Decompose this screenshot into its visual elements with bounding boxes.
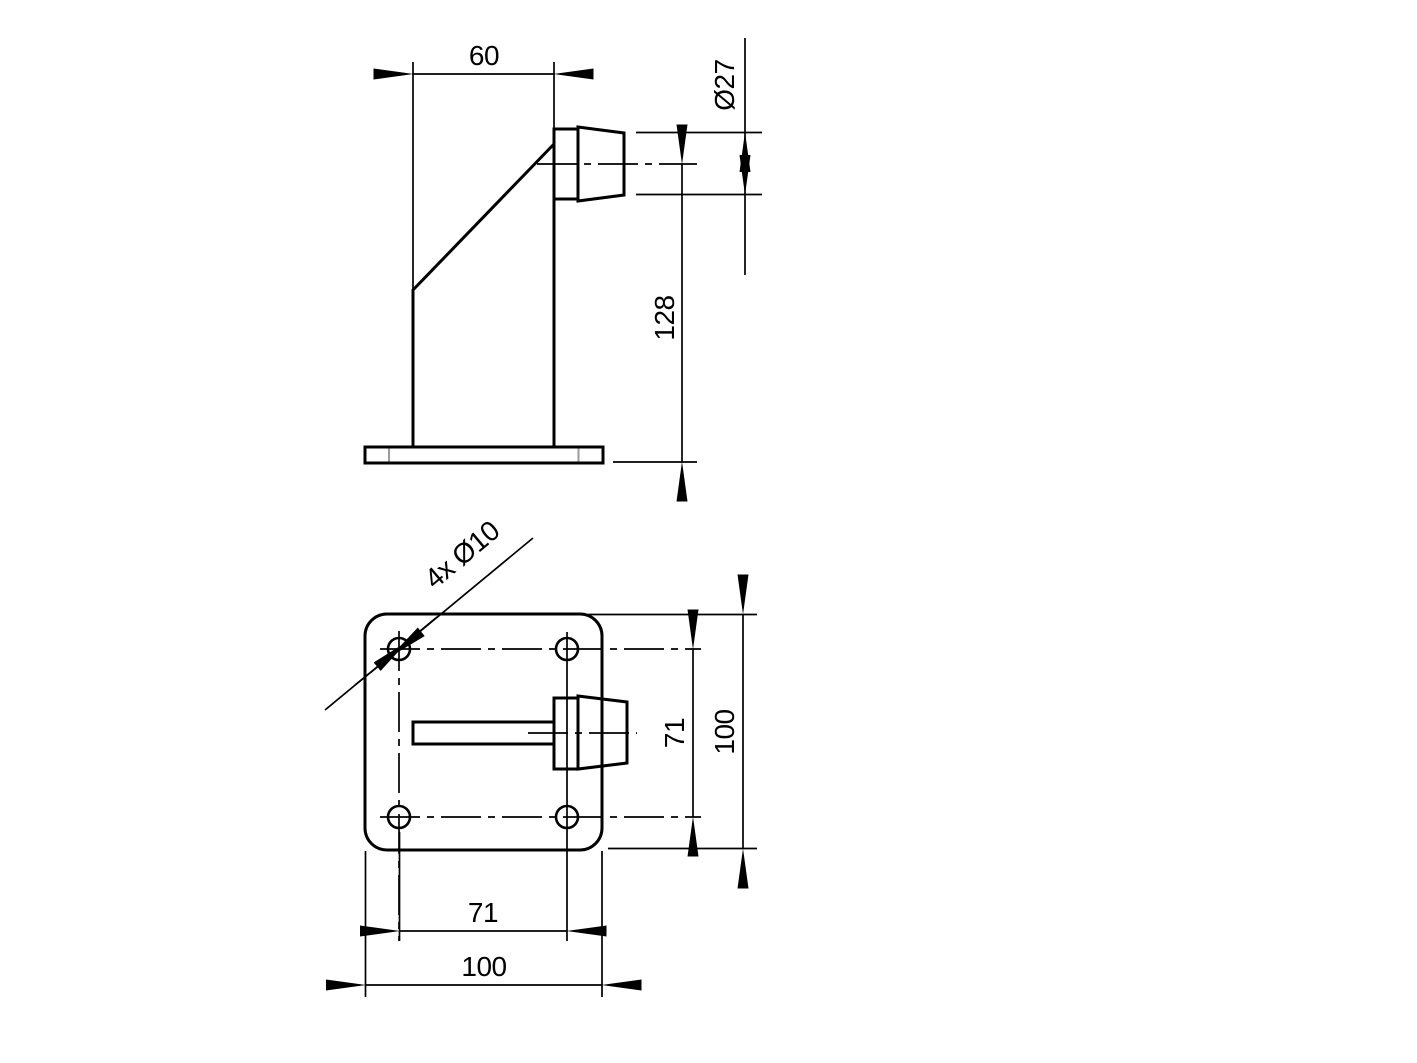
leader-4xd10-label: 4x Ø10 (418, 515, 505, 595)
dim-128-label: 128 (649, 295, 680, 340)
leader-4xd10-arrow-upper (408, 617, 438, 642)
leader-4xd10-arrow-lower (355, 657, 391, 686)
dim-100v-label: 100 (709, 709, 740, 754)
dim-60-label: 60 (469, 40, 499, 71)
technical-drawing-page: 60 Ø27 128 4x Ø10 (0, 0, 1417, 1063)
dim-71v-label: 71 (659, 718, 690, 748)
dim-71h-label: 71 (468, 897, 498, 928)
dim-100h-label: 100 (461, 951, 506, 982)
arm-outline (413, 144, 554, 447)
dim-d27-label: Ø27 (709, 59, 740, 110)
plan-view: 4x Ø10 71 100 71 100 (325, 515, 757, 997)
side-view: 60 Ø27 128 (365, 38, 762, 463)
base-plate-outline (365, 447, 603, 463)
